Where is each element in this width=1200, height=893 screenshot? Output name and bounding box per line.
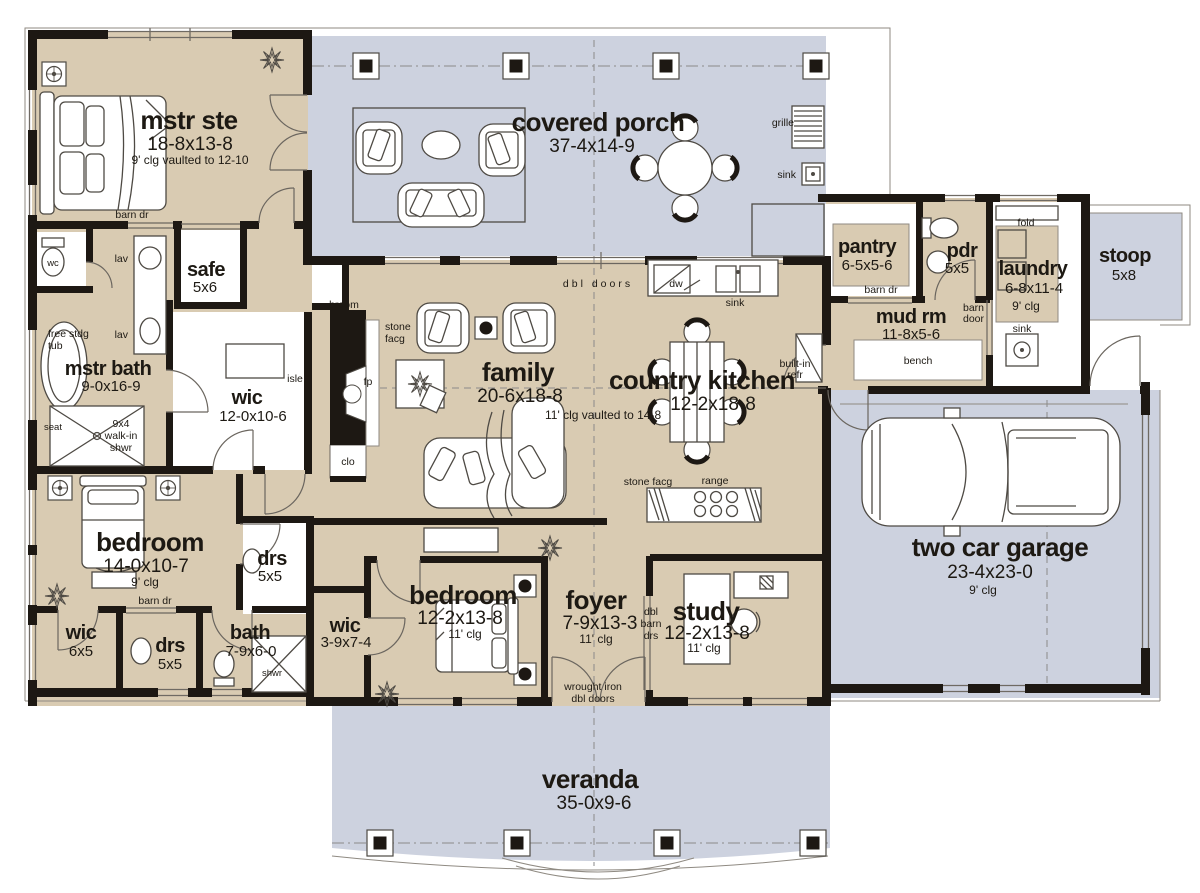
country-kitchen-name: country kitchen bbox=[609, 365, 795, 395]
bedroom14-dims: 14-0x10-7 bbox=[103, 556, 189, 577]
drs-upper-name: drs bbox=[257, 548, 287, 570]
bedroom12-name: bedroom bbox=[409, 580, 517, 610]
covered-porch-name: covered porch bbox=[512, 107, 685, 137]
label-dw: dw bbox=[669, 278, 683, 290]
label-stone-facg-island: stone facg bbox=[624, 476, 673, 488]
pdr-dims: 5x5 bbox=[945, 260, 969, 277]
label-wrought-iron-doors: wrought irondbl doors bbox=[563, 681, 622, 705]
wic-6x5-dims: 6x5 bbox=[69, 643, 93, 660]
pdr-name: pdr bbox=[947, 240, 978, 262]
label-seat: seat bbox=[44, 422, 62, 433]
veranda-dims: 35-0x9-6 bbox=[557, 793, 632, 814]
bath-dims: 7-9x6-0 bbox=[226, 643, 277, 660]
label-lav-2: lav bbox=[115, 329, 129, 341]
mstr-bath-dims: 9-0x16-9 bbox=[81, 378, 140, 395]
bedroom12-note: 11' clg bbox=[448, 627, 481, 641]
garage-note: 9' clg bbox=[969, 583, 997, 597]
mstr-bath-name: mstr bath bbox=[65, 358, 152, 380]
study-note: 11' clg bbox=[687, 641, 720, 655]
family-name: family bbox=[482, 357, 555, 387]
label-sink-kitchen: sink bbox=[726, 297, 745, 309]
label-isle: isle bbox=[287, 373, 303, 385]
label-wc: wc bbox=[46, 258, 59, 269]
floor-plan-page: mstr ste 18-8x13-8 9' clg vaulted to 12-… bbox=[0, 0, 1200, 893]
label-clo: clo bbox=[341, 456, 355, 468]
label-lav-1: lav bbox=[115, 253, 129, 265]
laundry-name: laundry bbox=[999, 258, 1069, 280]
bedroom14-name: bedroom bbox=[96, 527, 204, 557]
foyer-name: foyer bbox=[565, 585, 626, 615]
foyer-dims: 7-9x13-3 bbox=[563, 613, 638, 634]
bedroom14-note: 9' clg bbox=[131, 575, 159, 589]
mstr-ste-note: 9' clg vaulted to 12-10 bbox=[131, 153, 248, 167]
country-kitchen-dims: 12-2x18-8 bbox=[670, 394, 756, 415]
mud-rm-name: mud rm bbox=[876, 306, 946, 328]
safe-dims: 5x6 bbox=[193, 279, 217, 296]
label-range: range bbox=[702, 475, 729, 487]
label-fp: fp bbox=[364, 376, 373, 388]
label-sink-laundry: sink bbox=[1013, 323, 1032, 335]
room-label-mstr-ste: mstr ste 18-8x13-8 9' clg vaulted to 12-… bbox=[131, 105, 248, 167]
foyer-note: 11' clg bbox=[579, 632, 612, 646]
room-label-veranda: veranda 35-0x9-6 bbox=[542, 764, 639, 814]
label-barn-dr-pantry: barn dr bbox=[864, 284, 898, 296]
wic-6x5-name: wic bbox=[65, 622, 97, 644]
label-bench: bench bbox=[904, 355, 933, 367]
family-note: 11' clg vaulted to 14-8 bbox=[545, 408, 661, 422]
room-label-pantry: pantry 6-5x5-6 bbox=[838, 236, 898, 274]
label-shwr: shwr bbox=[262, 668, 282, 679]
mstr-ste-dims: 18-8x13-8 bbox=[147, 134, 233, 155]
label-grille: grille bbox=[772, 117, 794, 129]
wic-master-name: wic bbox=[231, 387, 263, 409]
label-barn-door-laundry: barndoor bbox=[963, 302, 985, 325]
label-sink-porch: sink bbox=[777, 169, 796, 181]
study-name: study bbox=[673, 596, 741, 626]
drs-lower-dims: 5x5 bbox=[158, 656, 182, 673]
room-label-mud-rm: mud rm 11-8x5-6 bbox=[876, 306, 946, 343]
stoop-dims: 5x8 bbox=[1112, 267, 1136, 284]
room-label-wic-6x5: wic 6x5 bbox=[65, 622, 97, 660]
floor-plan-svg: mstr ste 18-8x13-8 9' clg vaulted to 12-… bbox=[0, 0, 1200, 893]
garage-truck bbox=[862, 408, 1120, 536]
label-barn-dr-closet: barn dr bbox=[138, 595, 172, 607]
safe-name: safe bbox=[187, 259, 225, 281]
laundry-note: 9' clg bbox=[1012, 299, 1040, 313]
veranda-name: veranda bbox=[542, 764, 639, 794]
room-label-drs-lower: drs 5x5 bbox=[155, 635, 185, 673]
garage-name: two car garage bbox=[912, 532, 1089, 562]
bedroom12-dims: 12-2x13-8 bbox=[417, 608, 503, 629]
pantry-name: pantry bbox=[838, 236, 898, 258]
label-dbl-doors: dbl doors bbox=[563, 278, 633, 290]
laundry-dims: 6-8x11-4 bbox=[1005, 280, 1063, 297]
mstr-ste-name: mstr ste bbox=[140, 105, 237, 135]
mud-rm-dims: 11-8x5-6 bbox=[882, 326, 940, 343]
wic-master-dims: 12-0x10-6 bbox=[219, 408, 287, 425]
family-dims: 20-6x18-8 bbox=[477, 386, 563, 407]
room-label-bath: bath 7-9x6-0 bbox=[226, 622, 277, 660]
pantry-dims: 6-5x5-6 bbox=[842, 257, 893, 274]
stoop-name: stoop bbox=[1099, 245, 1151, 267]
covered-porch-dims: 37-4x14-9 bbox=[549, 136, 635, 157]
garage-dims: 23-4x23-0 bbox=[947, 562, 1033, 583]
drs-lower-name: drs bbox=[155, 635, 185, 657]
bath-name: bath bbox=[230, 622, 270, 644]
drs-upper-dims: 5x5 bbox=[258, 568, 282, 585]
wic-3-9-dims: 3-9x7-4 bbox=[321, 634, 372, 651]
label-barn-dr-mstr: barn dr bbox=[115, 209, 149, 221]
label-broom: broom bbox=[329, 299, 359, 311]
label-fold: fold bbox=[1018, 217, 1035, 229]
